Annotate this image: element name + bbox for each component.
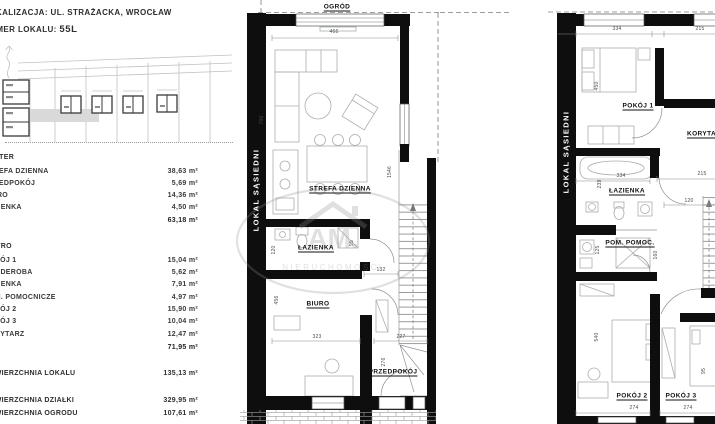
area-row: STREFA DZIENNA38,63 m² [0, 168, 198, 175]
dim-160: 160 [653, 251, 659, 260]
dim-276: 276 [381, 358, 387, 367]
room-label-przedpokoj: PRZEDPOKÓJ [369, 369, 418, 376]
dim-1546: 1546 [387, 166, 393, 178]
summary-row: POWIERZCHNIA OGRODU107,61 m² [0, 410, 198, 417]
room-label-pokoj2: POKÓJ 2 [617, 393, 648, 400]
room-label-lazienka: ŁAZIENKA [298, 245, 334, 252]
dim-125: 125 [595, 246, 601, 255]
dim-274-left: 274 [630, 405, 639, 411]
floor1-title: PARTER [0, 154, 198, 161]
floor-plan-sheet: AM. NIERUCHOMOŚCI LOKALIZACJA: UL. STRAŻ… [0, 0, 715, 424]
area-row: ŁAZIENKA7,91 m² [0, 281, 198, 288]
dim-700: 700 [259, 116, 265, 125]
dim-274-right: 274 [684, 405, 693, 411]
dim-120-ground: 120 [271, 246, 277, 255]
dim-456: 456 [274, 296, 280, 305]
dim-334-top: 334 [613, 26, 622, 32]
terrace-paving [240, 410, 436, 424]
dim-466: 466 [330, 29, 339, 35]
party-wall-upper [557, 13, 576, 424]
area-row: POKÓJ 310,04 m² [0, 318, 198, 325]
room-label-pokoj1: POKÓJ 1 [623, 103, 654, 110]
room-label-strefa-dzienna: STREFA DZIENNA [309, 186, 371, 193]
area-row: POM. POMOCNICZE4,97 m² [0, 294, 198, 301]
room-label-pom-pomoc: POM. POMOC. [605, 240, 654, 247]
room-label-biuro: BIURO [307, 301, 330, 308]
room-label-pokoj3: POKÓJ 3 [666, 393, 697, 400]
area-row: ŁAZIENKA4,50 m² [0, 204, 198, 211]
dim-227: 227 [397, 334, 406, 340]
ground-floor-plan [240, 0, 512, 424]
upper-floor-plan [548, 12, 715, 424]
dim-215-mid: 215 [698, 171, 707, 177]
floor2-title: PIĘTRO [0, 243, 198, 250]
floor1-total-row: 63,18 m² [0, 217, 198, 224]
neighbor-label-ground: LOKAL SĄSIEDNI [252, 149, 261, 232]
garden-label: OGRÓD [324, 4, 351, 11]
location-line: LOKALIZACJA: UL. STRAŻACKA, WROCŁAW [0, 8, 172, 17]
site-plan-separator [5, 142, 233, 143]
dim-239: 239 [597, 180, 603, 189]
upper-stairs [703, 196, 715, 292]
area-row: POKÓJ 115,04 m² [0, 257, 198, 264]
room-label-korytarz: KORYTARZ [687, 131, 715, 138]
dim-95-ground: 95 [349, 240, 355, 246]
unit-number-label: NUMER LOKALU: [0, 25, 57, 34]
area-row: POKÓJ 215,90 m² [0, 306, 198, 313]
area-row: BIURO14,36 m² [0, 192, 198, 199]
summary-row: POWIERZCHNIA DZIAŁKI329,95 m² [0, 397, 198, 404]
dim-323: 323 [313, 334, 322, 340]
dim-95-upper: 95 [701, 368, 707, 374]
dim-215-top: 215 [696, 26, 705, 32]
watermark-name: NIERUCHOMOŚCI [282, 263, 383, 272]
ground-stairs [399, 150, 427, 396]
dim-450: 450 [594, 82, 600, 91]
unit-number-line: NUMER LOKALU: 55L [0, 24, 78, 35]
area-row: KORYTARZ12,47 m² [0, 331, 198, 338]
area-row: GARDEROBA5,62 m² [0, 269, 198, 276]
area-summary-panel: LOKALIZACJA: UL. STRAŻACKA, WROCŁAW NUME… [0, 0, 198, 424]
area-row: PRZEDPOKÓJ5,69 m² [0, 180, 198, 187]
neighbor-label-upper: LOKAL SĄSIEDNI [562, 111, 571, 194]
summary-row: POWIERZCHNIA LOKALU135,13 m² [0, 370, 198, 377]
unit-number-value: 55L [59, 24, 77, 35]
dim-334-mid: 334 [617, 173, 626, 179]
floor2-total-row: 71,95 m² [0, 344, 198, 351]
dim-540: 540 [594, 333, 600, 342]
dim-132: 132 [377, 267, 386, 273]
room-label-lazienka-upper: ŁAZIENKA [609, 188, 645, 195]
dim-120-upper: 120 [685, 198, 694, 204]
